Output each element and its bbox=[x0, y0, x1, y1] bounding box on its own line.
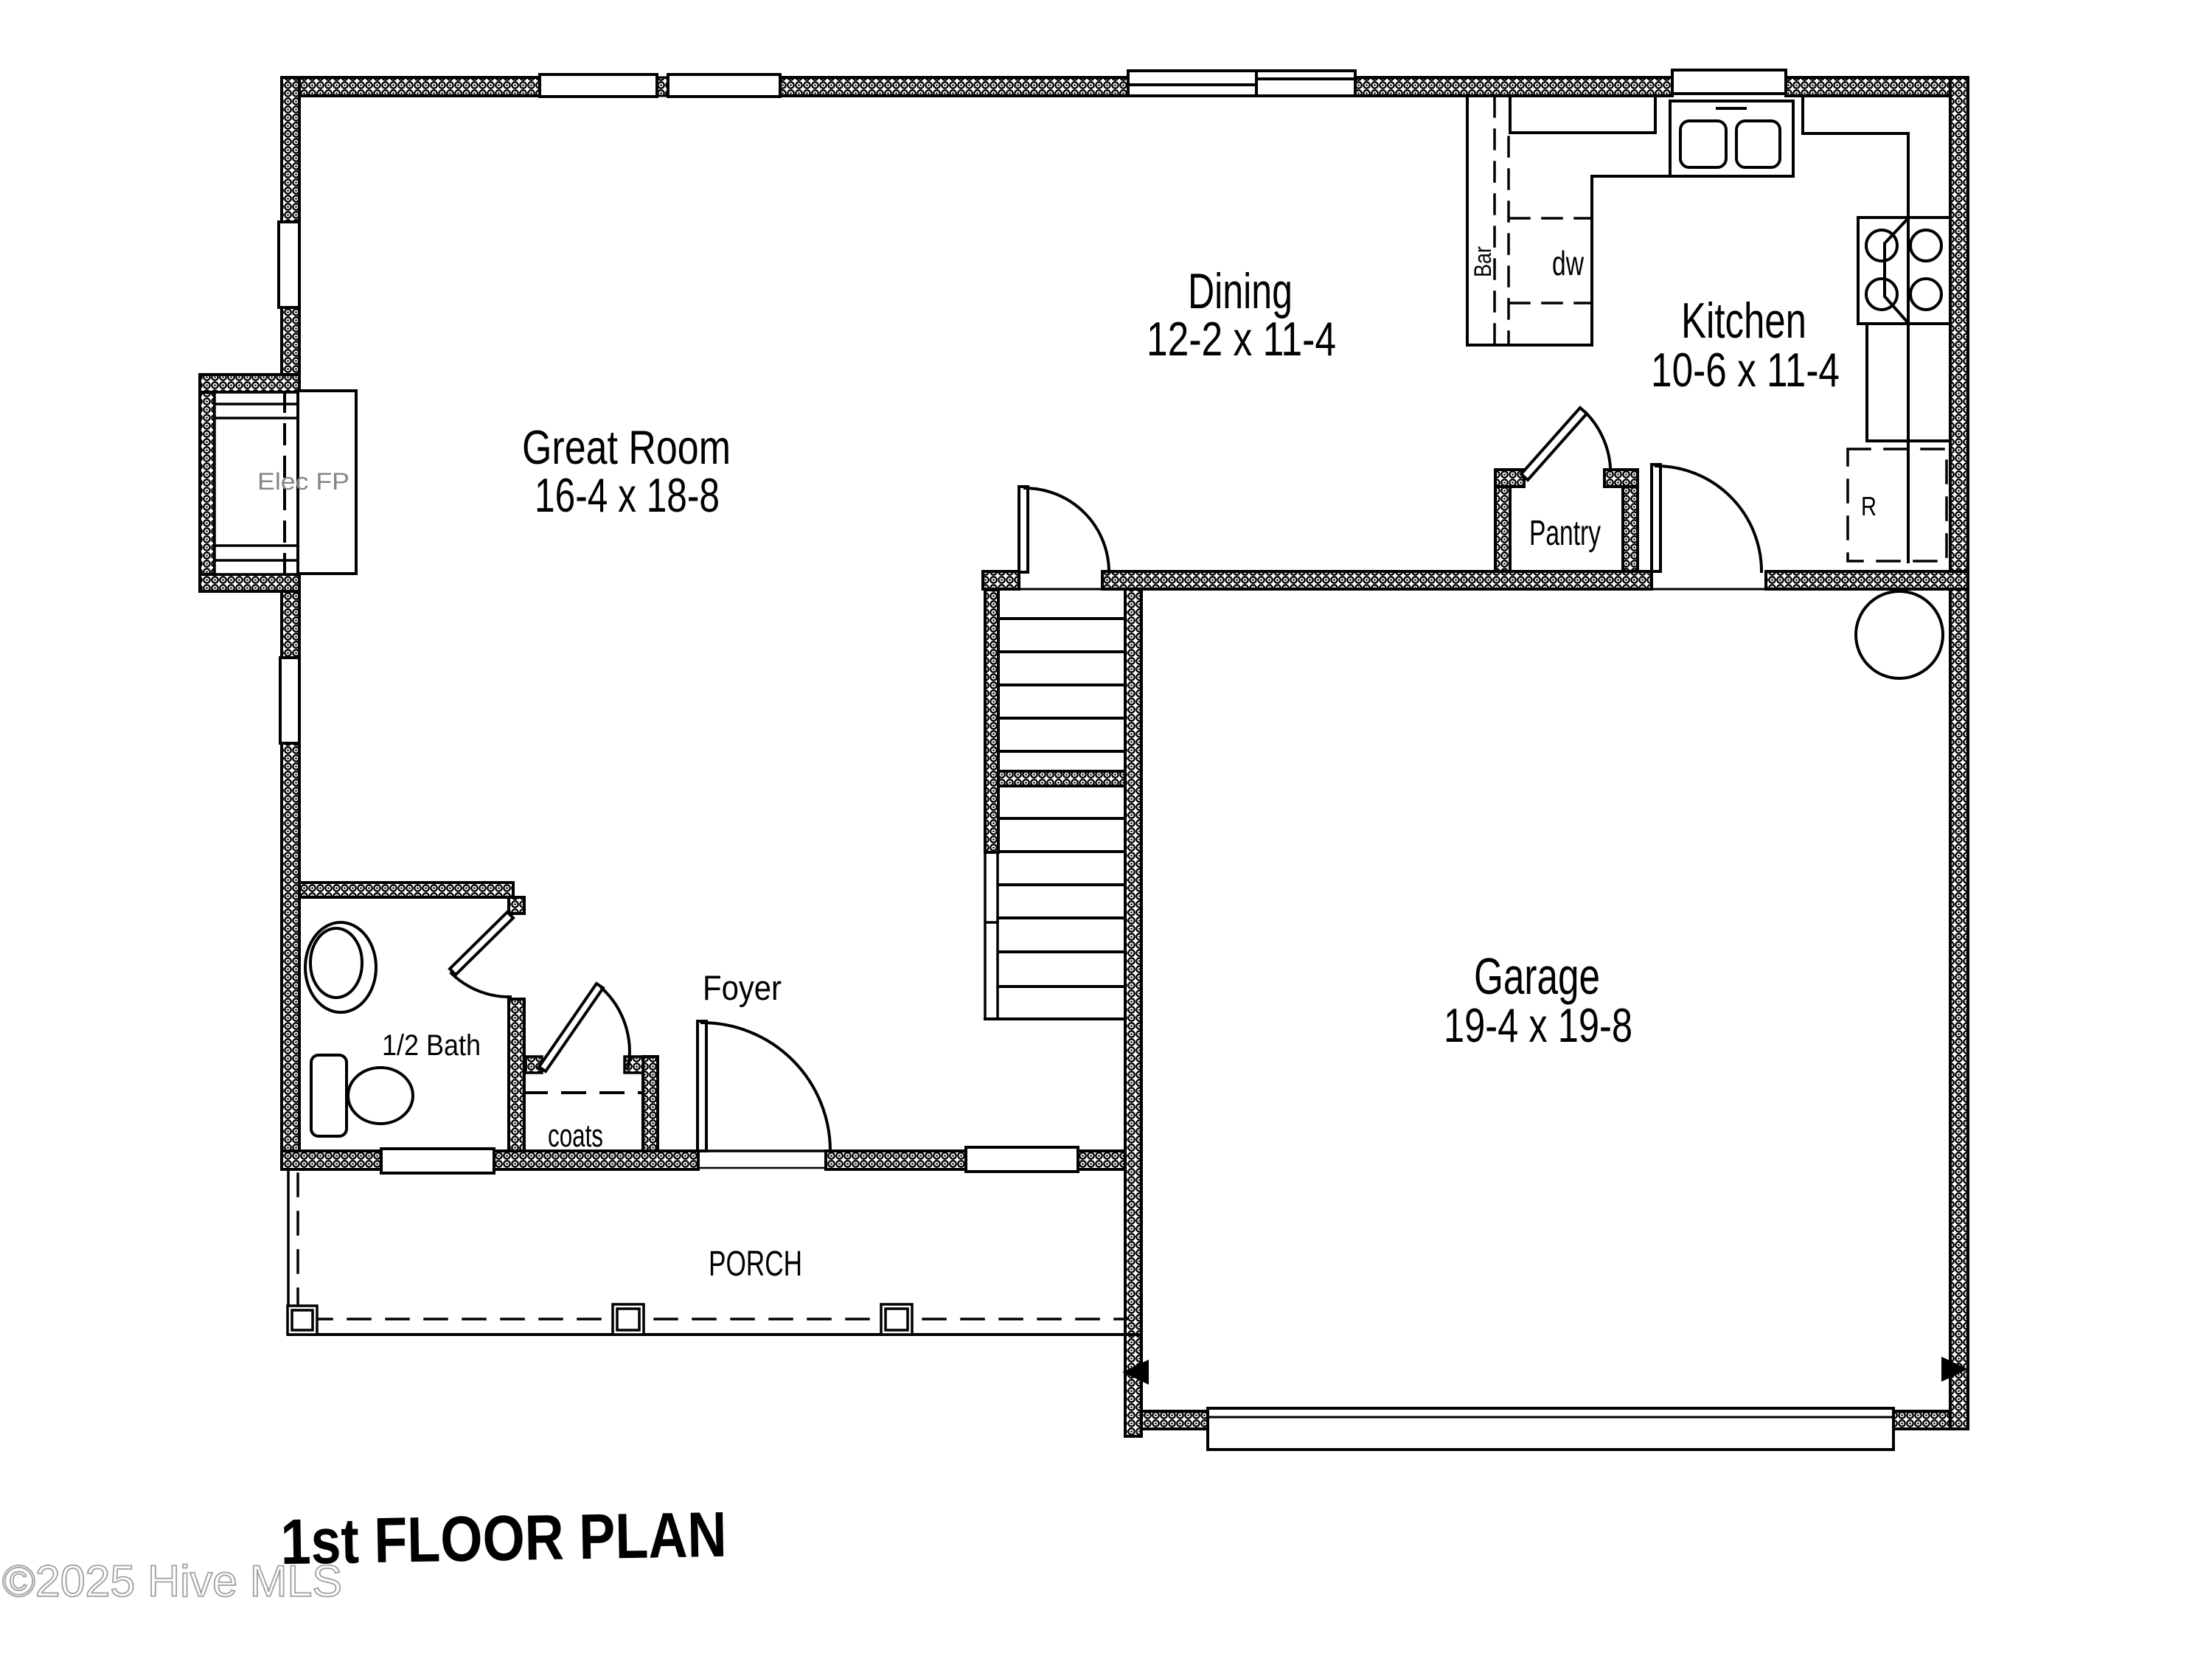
svg-text:©2025 Hive MLS: ©2025 Hive MLS bbox=[2, 1556, 342, 1606]
svg-text:Dining: Dining bbox=[1188, 263, 1293, 319]
svg-text:Foyer: Foyer bbox=[703, 968, 782, 1007]
svg-text:R: R bbox=[1861, 491, 1877, 521]
svg-text:Great Room: Great Room bbox=[522, 420, 731, 474]
svg-text:Kitchen: Kitchen bbox=[1681, 293, 1806, 349]
svg-text:coats: coats bbox=[548, 1118, 603, 1154]
svg-text:Elec FP: Elec FP bbox=[257, 468, 349, 495]
svg-text:Pantry: Pantry bbox=[1529, 514, 1601, 553]
svg-text:Bar: Bar bbox=[1470, 246, 1496, 277]
svg-text:PORCH: PORCH bbox=[709, 1245, 802, 1284]
svg-text:Garage: Garage bbox=[1474, 947, 1600, 1005]
svg-text:10-6 x 11-4: 10-6 x 11-4 bbox=[1651, 343, 1840, 397]
svg-text:dw: dw bbox=[1552, 244, 1585, 282]
svg-text:19-4 x 19-8: 19-4 x 19-8 bbox=[1444, 998, 1632, 1052]
svg-text:1/2 Bath: 1/2 Bath bbox=[382, 1029, 481, 1062]
svg-text:16-4 x 18-8: 16-4 x 18-8 bbox=[535, 468, 720, 522]
svg-text:1st FLOOR PLAN: 1st FLOOR PLAN bbox=[280, 1499, 728, 1579]
svg-text:12-2 x 11-4: 12-2 x 11-4 bbox=[1147, 312, 1336, 366]
